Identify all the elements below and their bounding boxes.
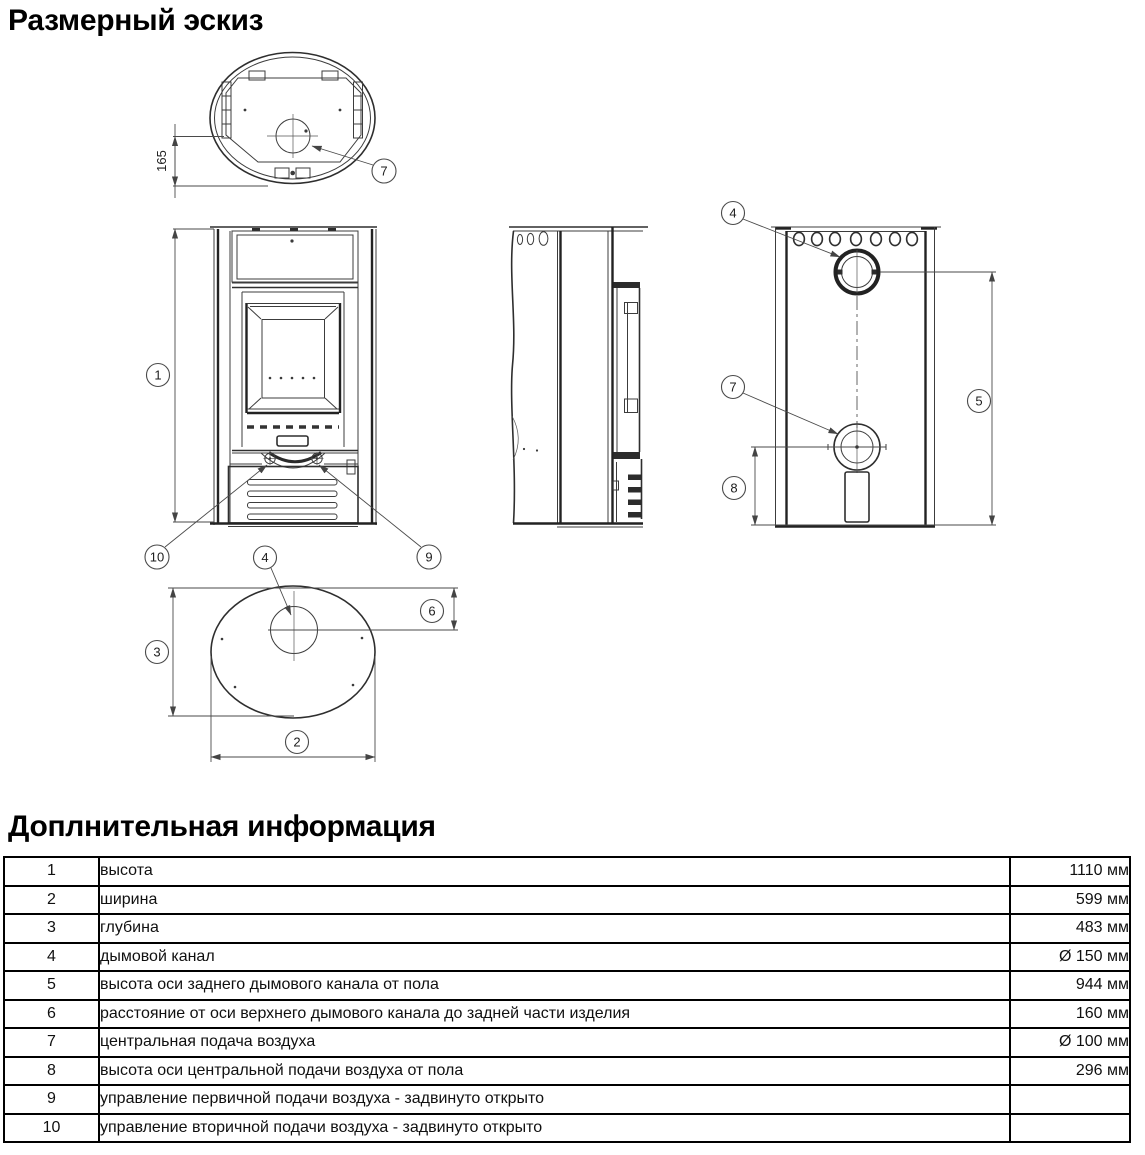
svg-text:4: 4 bbox=[729, 206, 736, 221]
svg-text:6: 6 bbox=[428, 604, 435, 619]
view-side bbox=[509, 227, 648, 527]
table-row: 1 высота 1110 мм bbox=[4, 857, 1130, 886]
dimension-air-inlet-height bbox=[751, 447, 830, 525]
table-row: 3 глубина 483 мм bbox=[4, 914, 1130, 943]
row-number: 4 bbox=[4, 943, 99, 972]
callout-7-rear: 7 bbox=[722, 376, 839, 435]
row-value: Ø 150 мм bbox=[1010, 943, 1130, 972]
callout-8: 8 bbox=[723, 477, 746, 500]
row-value: 944 мм bbox=[1010, 971, 1130, 1000]
row-description: центральная подача воздуха bbox=[99, 1028, 1010, 1057]
row-value: 160 мм bbox=[1010, 1000, 1130, 1029]
table-row: 5 высота оси заднего дымового канала от … bbox=[4, 971, 1130, 1000]
row-number: 2 bbox=[4, 886, 99, 915]
page: Размерный эскиз bbox=[0, 0, 1145, 1155]
row-value: 1110 мм bbox=[1010, 857, 1130, 886]
info-table: 1 высота 1110 мм 2 ширина 599 мм 3 глуби… bbox=[3, 856, 1131, 1143]
row-description: расстояние от оси верхнего дымового кана… bbox=[99, 1000, 1010, 1029]
dimension-165: 165 bbox=[154, 124, 268, 198]
row-description: управление первичной подачи воздуха - за… bbox=[99, 1085, 1010, 1114]
row-description: дымовой канал bbox=[99, 943, 1010, 972]
row-number: 6 bbox=[4, 1000, 99, 1029]
dimension-height bbox=[173, 229, 214, 522]
row-value bbox=[1010, 1085, 1130, 1114]
row-value: 483 мм bbox=[1010, 914, 1130, 943]
callout-1: 1 bbox=[147, 364, 170, 387]
callout-5: 5 bbox=[968, 390, 991, 413]
svg-text:10: 10 bbox=[150, 550, 164, 565]
table-row: 10 управление вторичной подачи воздуха -… bbox=[4, 1114, 1130, 1143]
table-row: 9 управление первичной подачи воздуха - … bbox=[4, 1085, 1130, 1114]
callout-10: 10 bbox=[145, 465, 267, 569]
svg-text:9: 9 bbox=[425, 550, 432, 565]
row-number: 10 bbox=[4, 1114, 99, 1143]
svg-text:7: 7 bbox=[380, 164, 387, 179]
row-number: 7 bbox=[4, 1028, 99, 1057]
svg-text:7: 7 bbox=[729, 380, 736, 395]
row-value: 599 мм bbox=[1010, 886, 1130, 915]
row-number: 5 bbox=[4, 971, 99, 1000]
table-row: 2 ширина 599 мм bbox=[4, 886, 1130, 915]
view-bottom bbox=[211, 586, 458, 718]
dim-165-label: 165 bbox=[154, 150, 169, 172]
table-row: 7 центральная подача воздуха Ø 100 мм bbox=[4, 1028, 1130, 1057]
callout-7-top: 7 bbox=[312, 146, 396, 183]
row-description: высота bbox=[99, 857, 1010, 886]
row-number: 3 bbox=[4, 914, 99, 943]
view-front bbox=[210, 227, 377, 527]
row-description: высота оси центральной подачи воздуха от… bbox=[99, 1057, 1010, 1086]
callout-4-bottom: 4 bbox=[254, 546, 292, 615]
sketch-title: Размерный эскиз bbox=[8, 4, 263, 38]
svg-text:1: 1 bbox=[154, 368, 161, 383]
row-value: Ø 100 мм bbox=[1010, 1028, 1130, 1057]
svg-text:4: 4 bbox=[261, 550, 268, 565]
table-row: 6 расстояние от оси верхнего дымового ка… bbox=[4, 1000, 1130, 1029]
svg-text:5: 5 bbox=[975, 394, 982, 409]
callout-3: 3 bbox=[146, 641, 169, 664]
row-number: 9 bbox=[4, 1085, 99, 1114]
row-description: управление вторичной подачи воздуха - за… bbox=[99, 1114, 1010, 1143]
callout-2: 2 bbox=[286, 731, 309, 754]
dimension-rear-flue-height bbox=[751, 272, 996, 525]
svg-text:2: 2 bbox=[293, 735, 300, 750]
callout-6: 6 bbox=[421, 600, 444, 623]
table-row: 4 дымовой канал Ø 150 мм bbox=[4, 943, 1130, 972]
svg-text:3: 3 bbox=[153, 645, 160, 660]
row-description: высота оси заднего дымового канала от по… bbox=[99, 971, 1010, 1000]
table-row: 8 высота оси центральной подачи воздуха … bbox=[4, 1057, 1130, 1086]
row-description: глубина bbox=[99, 914, 1010, 943]
row-value: 296 мм bbox=[1010, 1057, 1130, 1086]
view-top bbox=[210, 53, 375, 184]
row-number: 8 bbox=[4, 1057, 99, 1086]
svg-text:8: 8 bbox=[730, 481, 737, 496]
row-description: ширина bbox=[99, 886, 1010, 915]
info-title: Доплнительная информация bbox=[8, 810, 436, 844]
row-value bbox=[1010, 1114, 1130, 1143]
dimensional-sketch: 165 7 bbox=[0, 45, 1145, 810]
row-number: 1 bbox=[4, 857, 99, 886]
